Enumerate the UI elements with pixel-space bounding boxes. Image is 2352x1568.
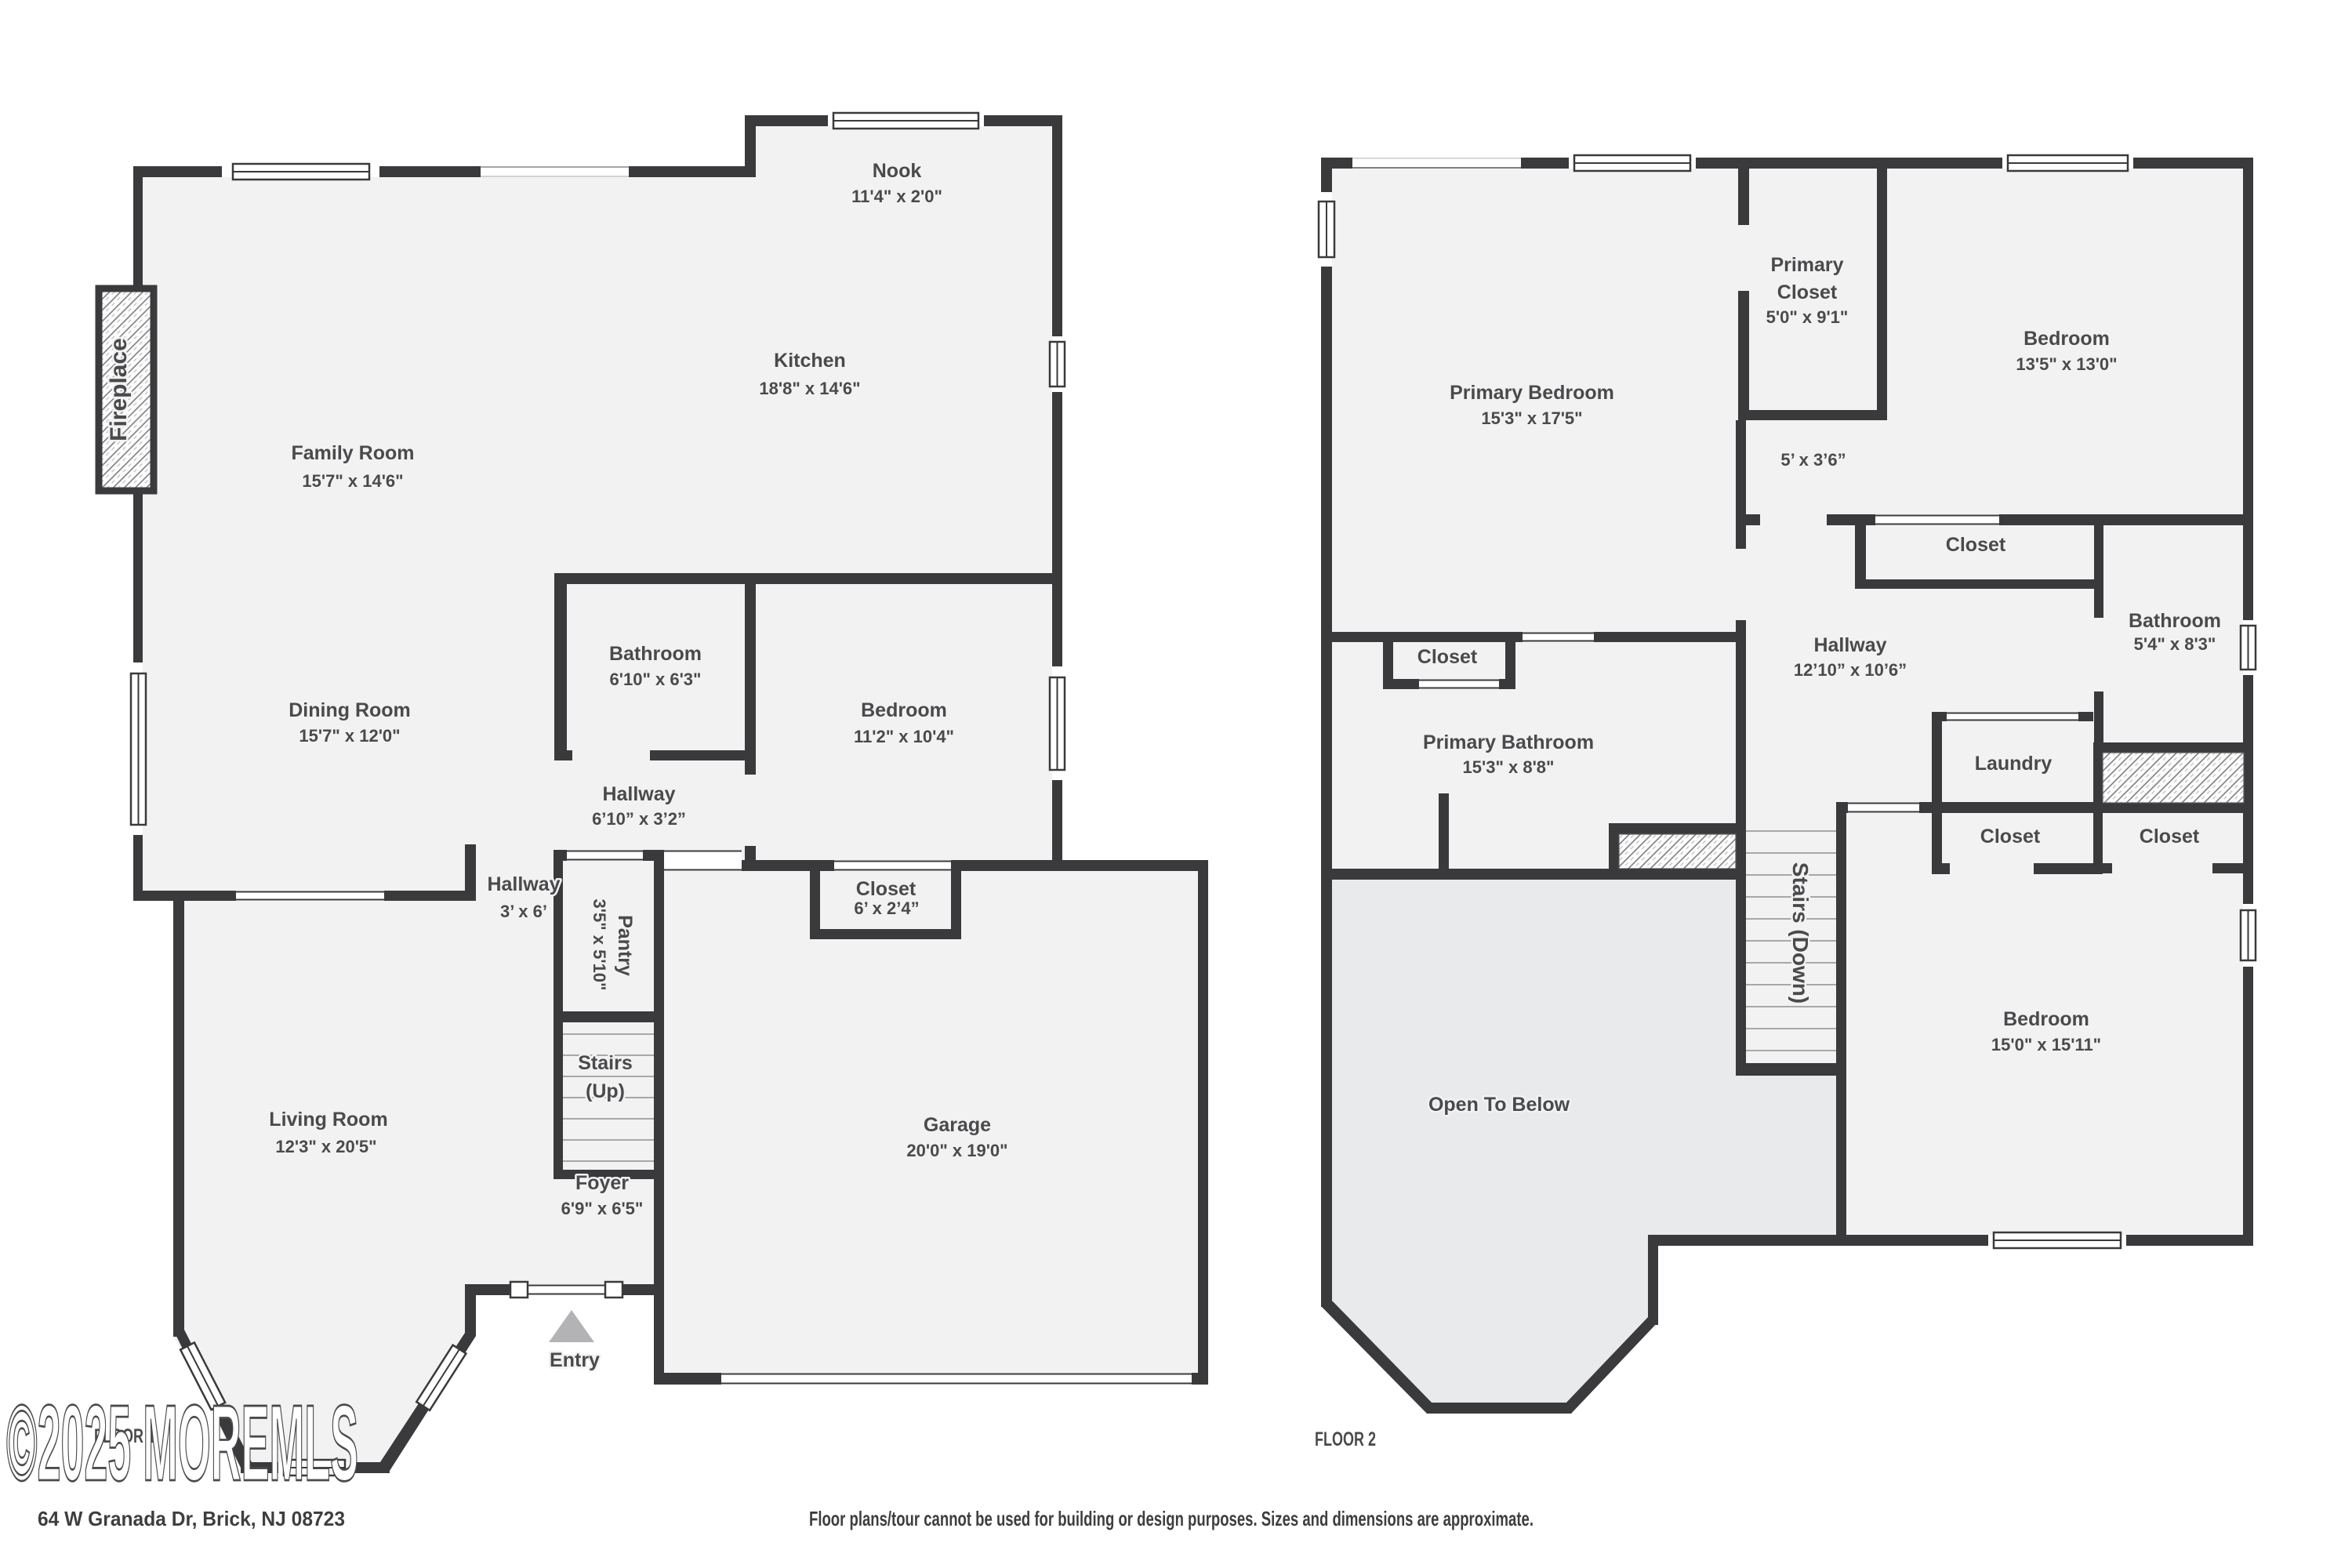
- svg-text:©2025 MOREMLS: ©2025 MOREMLS: [6, 1383, 358, 1504]
- svg-text:Bedroom: Bedroom: [861, 699, 947, 721]
- svg-text:15'3" x 17'5": 15'3" x 17'5": [1481, 408, 1582, 428]
- svg-text:Closet: Closet: [1946, 534, 2006, 556]
- svg-text:5'0" x 9'1": 5'0" x 9'1": [1766, 307, 1849, 327]
- svg-text:Family Room: Family Room: [292, 442, 415, 464]
- svg-text:Foyer: Foyer: [575, 1172, 629, 1194]
- svg-text:6'10" x 6'3": 6'10" x 6'3": [610, 670, 702, 689]
- svg-text:Dining Room: Dining Room: [289, 699, 411, 721]
- svg-text:12'3" x 20'5": 12'3" x 20'5": [275, 1137, 376, 1156]
- svg-text:Stairs: Stairs: [578, 1052, 632, 1074]
- svg-text:Closet: Closet: [2140, 826, 2200, 848]
- svg-text:Closet: Closet: [1980, 826, 2041, 848]
- svg-text:15'7" x 12'0": 15'7" x 12'0": [299, 726, 400, 746]
- svg-text:Kitchen: Kitchen: [774, 350, 846, 372]
- svg-text:Entry: Entry: [550, 1349, 600, 1371]
- svg-text:Closet: Closet: [856, 878, 916, 900]
- svg-text:5'4" x 8'3": 5'4" x 8'3": [2134, 634, 2216, 654]
- svg-text:18'8" x 14'6": 18'8" x 14'6": [759, 379, 860, 398]
- svg-text:12’10” x 10’6”: 12’10” x 10’6”: [1794, 660, 1907, 680]
- svg-text:Floor plans/tour cannot be use: Floor plans/tour cannot be used for buil…: [809, 1507, 1534, 1530]
- svg-text:3'5" x 5'10": 3'5" x 5'10": [590, 899, 609, 991]
- svg-text:Nook: Nook: [873, 160, 922, 182]
- svg-text:15'0" x 15'11": 15'0" x 15'11": [1991, 1035, 2101, 1054]
- svg-text:15'3" x 8'8": 15'3" x 8'8": [1463, 757, 1555, 777]
- svg-text:Hallway: Hallway: [487, 873, 560, 895]
- svg-text:Closet: Closet: [1417, 646, 1478, 668]
- svg-text:64 W Granada Dr, Brick, NJ 087: 64 W Granada Dr, Brick, NJ 08723: [38, 1507, 345, 1530]
- svg-text:Pantry: Pantry: [614, 915, 636, 976]
- svg-text:3’ x 6’: 3’ x 6’: [500, 902, 547, 921]
- svg-text:Primary Bathroom: Primary Bathroom: [1423, 731, 1594, 753]
- svg-text:FLOOR 2: FLOOR 2: [1315, 1428, 1376, 1450]
- svg-text:6’ x 2’4”: 6’ x 2’4”: [854, 898, 919, 918]
- svg-text:(Up): (Up): [586, 1080, 625, 1102]
- svg-text:Primary: Primary: [1770, 254, 1843, 276]
- svg-text:13'5" x 13'0": 13'5" x 13'0": [2016, 354, 2117, 374]
- svg-text:Bathroom: Bathroom: [2129, 610, 2221, 632]
- svg-text:Stairs (Down): Stairs (Down): [1788, 862, 1813, 1004]
- svg-text:Laundry: Laundry: [1975, 753, 2053, 775]
- svg-text:Primary Bedroom: Primary Bedroom: [1450, 382, 1614, 404]
- svg-text:Garage: Garage: [924, 1114, 991, 1136]
- svg-text:Bedroom: Bedroom: [2024, 328, 2110, 350]
- svg-text:Bedroom: Bedroom: [2003, 1008, 2089, 1030]
- svg-text:Hallway: Hallway: [1813, 634, 1886, 656]
- svg-text:Fireplace: Fireplace: [106, 338, 132, 441]
- svg-text:Open To Below: Open To Below: [1428, 1094, 1570, 1116]
- svg-text:11'4" x 2'0": 11'4" x 2'0": [851, 187, 942, 206]
- svg-text:11'2" x 10'4": 11'2" x 10'4": [854, 727, 954, 746]
- svg-text:5’ x 3’6”: 5’ x 3’6”: [1780, 450, 1846, 470]
- svg-text:Bathroom: Bathroom: [609, 643, 702, 665]
- svg-text:Living Room: Living Room: [269, 1109, 387, 1131]
- svg-text:6'9" x 6'5": 6'9" x 6'5": [561, 1199, 644, 1218]
- svg-text:20'0" x 19'0": 20'0" x 19'0": [906, 1141, 1007, 1160]
- svg-text:Closet: Closet: [1777, 281, 1838, 303]
- svg-text:15'7" x 14'6": 15'7" x 14'6": [302, 471, 403, 491]
- svg-text:6’10” x 3’2”: 6’10” x 3’2”: [592, 809, 686, 829]
- svg-text:Hallway: Hallway: [602, 783, 675, 805]
